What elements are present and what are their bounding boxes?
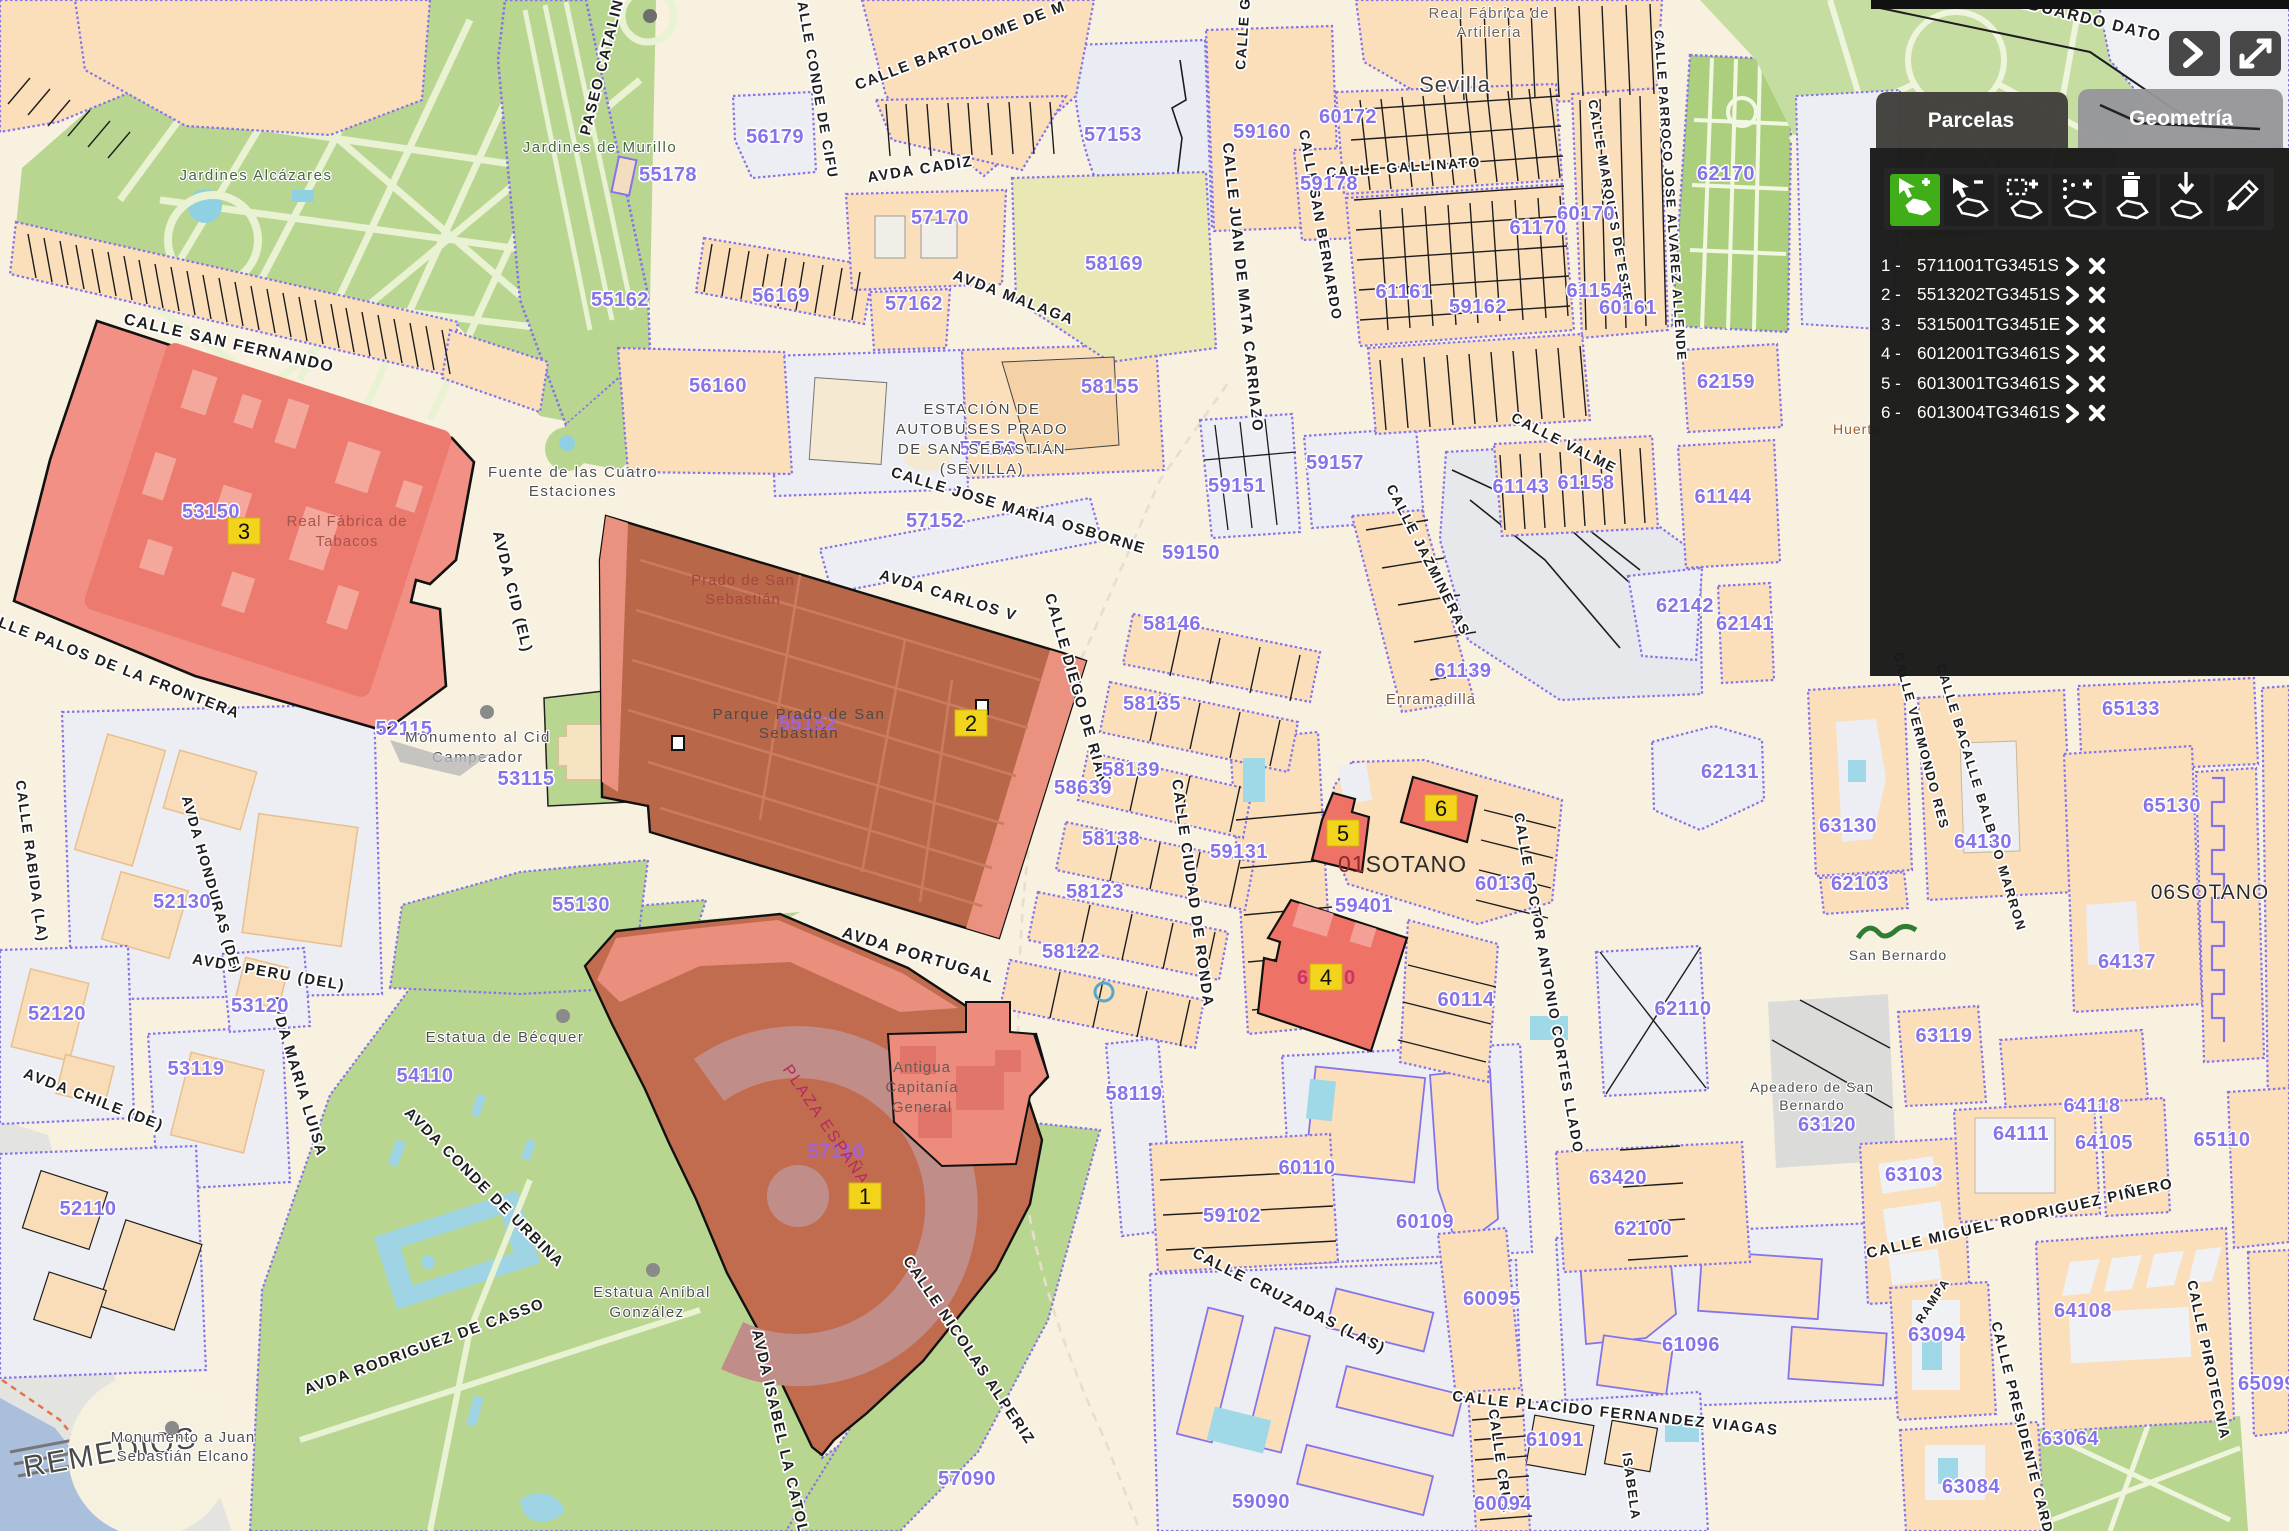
svg-text:5: 5 (1337, 821, 1349, 846)
svg-text:6: 6 (1297, 967, 1309, 989)
svg-text:65099: 65099 (2238, 1373, 2289, 1395)
svg-text:61139: 61139 (1434, 660, 1491, 682)
svg-text:58119: 58119 (1105, 1083, 1162, 1105)
svg-text:DE SAN SEBASTIÁN: DE SAN SEBASTIÁN (898, 441, 1066, 458)
svg-text:60110: 60110 (1278, 1157, 1335, 1179)
svg-text:65130: 65130 (2143, 795, 2201, 817)
svg-text:6 -: 6 - (1881, 403, 1901, 422)
svg-text:4 -: 4 - (1881, 344, 1901, 363)
svg-text:General: General (892, 1099, 952, 1116)
svg-text:2: 2 (965, 711, 977, 736)
svg-text:58123: 58123 (1066, 881, 1124, 903)
svg-text:Sebastián Elcano: Sebastián Elcano (117, 1448, 250, 1465)
svg-text:62103: 62103 (1831, 873, 1889, 895)
svg-text:6013004TG3461S: 6013004TG3461S (1917, 402, 2060, 422)
svg-text:63420: 63420 (1589, 1167, 1647, 1189)
svg-text:57090: 57090 (938, 1468, 996, 1490)
svg-text:5315001TG3451E: 5315001TG3451E (1917, 314, 2060, 334)
svg-text:60114: 60114 (1437, 989, 1494, 1011)
svg-text:60094: 60094 (1474, 1493, 1532, 1515)
svg-text:61091: 61091 (1526, 1429, 1584, 1451)
svg-text:Parcelas: Parcelas (1928, 109, 2014, 132)
svg-text:53119: 53119 (167, 1058, 224, 1080)
svg-text:60095: 60095 (1463, 1288, 1521, 1310)
svg-text:Apeadero de San: Apeadero de San (1750, 1079, 1874, 1095)
svg-text:59178: 59178 (1300, 173, 1358, 195)
svg-text:59160: 59160 (1233, 121, 1291, 143)
svg-text:Artillería: Artillería (1456, 24, 1521, 41)
svg-text:1: 1 (859, 1184, 871, 1209)
svg-text:Estatua de Bécquer: Estatua de Bécquer (426, 1029, 585, 1046)
svg-text:55130: 55130 (552, 894, 610, 916)
svg-text:Enramadilla: Enramadilla (1386, 691, 1476, 708)
svg-text:58639: 58639 (1054, 777, 1112, 799)
svg-text:62142: 62142 (1656, 595, 1714, 617)
svg-text:AUTOBUSES PRADO: AUTOBUSES PRADO (896, 421, 1068, 438)
svg-text:0: 0 (1344, 967, 1356, 989)
svg-text:64111: 64111 (1993, 1123, 2049, 1145)
svg-text:Real Fábrica de: Real Fábrica de (1429, 5, 1550, 22)
svg-text:Geometría: Geometría (2129, 107, 2233, 130)
svg-text:58135: 58135 (1123, 693, 1181, 715)
svg-text:52120: 52120 (28, 1003, 86, 1025)
svg-text:53115: 53115 (497, 768, 554, 790)
svg-text:56169: 56169 (752, 285, 810, 307)
svg-text:56179: 56179 (746, 126, 804, 148)
svg-text:ESTACIÓN DE: ESTACIÓN DE (923, 401, 1040, 418)
svg-text:61158: 61158 (1557, 472, 1614, 494)
svg-text:Parque Prado de San: Parque Prado de San (713, 706, 886, 723)
svg-text:5711001TG3451S: 5711001TG3451S (1917, 255, 2059, 275)
svg-text:61170: 61170 (1509, 217, 1566, 239)
svg-text:Estatua Aníbal: Estatua Aníbal (593, 1284, 711, 1301)
svg-text:62141: 62141 (1716, 613, 1774, 635)
svg-text:Jardines de Murillo: Jardines de Murillo (523, 139, 677, 156)
svg-text:3 -: 3 - (1881, 315, 1901, 334)
svg-text:57162: 57162 (885, 293, 943, 315)
svg-text:59150: 59150 (1162, 542, 1220, 564)
svg-text:6013001TG3461S: 6013001TG3461S (1917, 373, 2060, 393)
svg-text:63064: 63064 (2041, 1428, 2099, 1450)
svg-text:Monumento a Juan: Monumento a Juan (111, 1429, 255, 1446)
svg-text:62159: 62159 (1697, 371, 1755, 393)
svg-text:54110: 54110 (396, 1065, 453, 1087)
svg-text:62100: 62100 (1614, 1218, 1672, 1240)
svg-text:González: González (609, 1304, 684, 1321)
svg-text:Jardines Alcázares: Jardines Alcázares (180, 167, 333, 184)
svg-text:52130: 52130 (153, 891, 211, 913)
svg-text:6012001TG3461S: 6012001TG3461S (1917, 343, 2060, 363)
svg-text:58155: 58155 (1081, 376, 1139, 398)
svg-text:63103: 63103 (1885, 1164, 1943, 1186)
svg-text:San Bernardo: San Bernardo (1849, 947, 1947, 963)
svg-text:58122: 58122 (1042, 941, 1100, 963)
svg-text:55178: 55178 (639, 164, 697, 186)
svg-text:58146: 58146 (1143, 613, 1201, 635)
svg-text:Bernardo: Bernardo (1779, 1097, 1845, 1113)
svg-text:65133: 65133 (2102, 698, 2160, 720)
svg-text:65110: 65110 (2193, 1129, 2250, 1151)
svg-text:63130: 63130 (1819, 815, 1877, 837)
svg-text:6: 6 (1435, 796, 1447, 821)
svg-text:62170: 62170 (1697, 163, 1755, 185)
svg-text:64108: 64108 (2054, 1300, 2112, 1322)
svg-text:61143: 61143 (1492, 476, 1549, 498)
svg-text:Sebastián: Sebastián (705, 591, 781, 608)
svg-text:63094: 63094 (1908, 1324, 1966, 1346)
svg-text:57170: 57170 (911, 207, 969, 229)
svg-text:1 -: 1 - (1881, 256, 1901, 275)
svg-text:61161: 61161 (1375, 281, 1432, 303)
svg-text:61096: 61096 (1662, 1334, 1720, 1356)
svg-text:64105: 64105 (2075, 1132, 2133, 1154)
svg-text:06SOTANO: 06SOTANO (2151, 881, 2269, 904)
svg-text:Sevilla: Sevilla (1419, 72, 1491, 97)
svg-text:59401: 59401 (1335, 895, 1393, 917)
svg-text:58169: 58169 (1085, 253, 1143, 275)
svg-text:53120: 53120 (231, 995, 289, 1017)
svg-text:60109: 60109 (1396, 1211, 1454, 1233)
svg-text:Sebastián: Sebastián (759, 725, 839, 742)
svg-text:Real Fábrica de: Real Fábrica de (287, 513, 408, 530)
svg-text:63084: 63084 (1942, 1476, 2000, 1498)
svg-text:59102: 59102 (1203, 1205, 1261, 1227)
svg-text:3: 3 (238, 519, 250, 544)
svg-text:Antigua: Antigua (893, 1059, 951, 1076)
svg-text:59151: 59151 (1208, 475, 1266, 497)
svg-text:57153: 57153 (1084, 124, 1142, 146)
svg-text:59157: 59157 (1306, 452, 1364, 474)
svg-text:5513202TG3451S: 5513202TG3451S (1917, 284, 2060, 304)
svg-text:57152: 57152 (906, 510, 964, 532)
svg-text:64118: 64118 (2063, 1095, 2120, 1117)
svg-text:4: 4 (1320, 965, 1332, 990)
svg-text:60130: 60130 (1475, 873, 1533, 895)
svg-text:64130: 64130 (1954, 831, 2012, 853)
svg-text:59090: 59090 (1232, 1491, 1290, 1513)
svg-text:61144: 61144 (1694, 486, 1751, 508)
svg-text:Monumento al Cid: Monumento al Cid (405, 729, 551, 746)
svg-text:Tabacos: Tabacos (316, 533, 379, 550)
svg-text:63119: 63119 (1915, 1025, 1972, 1047)
svg-text:58138: 58138 (1082, 828, 1140, 850)
svg-text:59162: 59162 (1449, 296, 1507, 318)
svg-text:59131: 59131 (1210, 841, 1268, 863)
svg-text:(SEVILLA): (SEVILLA) (940, 461, 1024, 478)
svg-text:5 -: 5 - (1881, 374, 1901, 393)
svg-text:01SOTANO: 01SOTANO (1338, 851, 1467, 877)
svg-text:61154: 61154 (1566, 280, 1623, 302)
svg-text:56160: 56160 (689, 375, 747, 397)
svg-text:Estaciones: Estaciones (529, 483, 617, 500)
svg-text:2 -: 2 - (1881, 285, 1901, 304)
svg-text:64137: 64137 (2098, 951, 2156, 973)
svg-text:63120: 63120 (1798, 1114, 1856, 1136)
svg-text:Capitanía: Capitanía (885, 1079, 958, 1096)
svg-text:Fuente de las Cuatro: Fuente de las Cuatro (488, 464, 658, 481)
svg-text:55162: 55162 (591, 289, 649, 311)
svg-text:62131: 62131 (1701, 761, 1759, 783)
svg-text:62110: 62110 (1654, 998, 1711, 1020)
svg-text:Prado de San: Prado de San (691, 572, 795, 589)
svg-text:60172: 60172 (1319, 106, 1377, 128)
svg-text:52110: 52110 (59, 1198, 116, 1220)
